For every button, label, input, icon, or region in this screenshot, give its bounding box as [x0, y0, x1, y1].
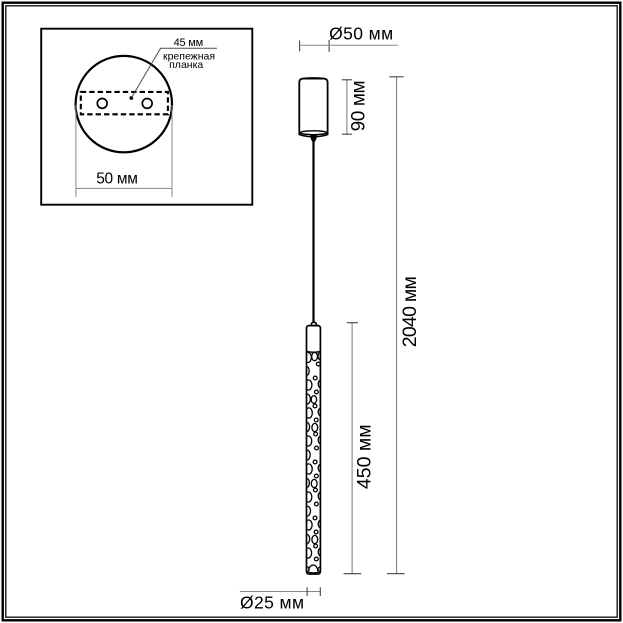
svg-text:50 мм: 50 мм	[96, 170, 137, 187]
svg-text:планка: планка	[169, 59, 203, 71]
svg-text:90 мм: 90 мм	[348, 81, 369, 132]
svg-text:45 мм: 45 мм	[174, 37, 203, 49]
svg-text:2040 мм: 2040 мм	[399, 276, 421, 347]
svg-text:Ø25 мм: Ø25 мм	[240, 593, 304, 613]
svg-text:Ø50 мм: Ø50 мм	[329, 24, 393, 44]
svg-text:450 мм: 450 мм	[354, 424, 376, 489]
